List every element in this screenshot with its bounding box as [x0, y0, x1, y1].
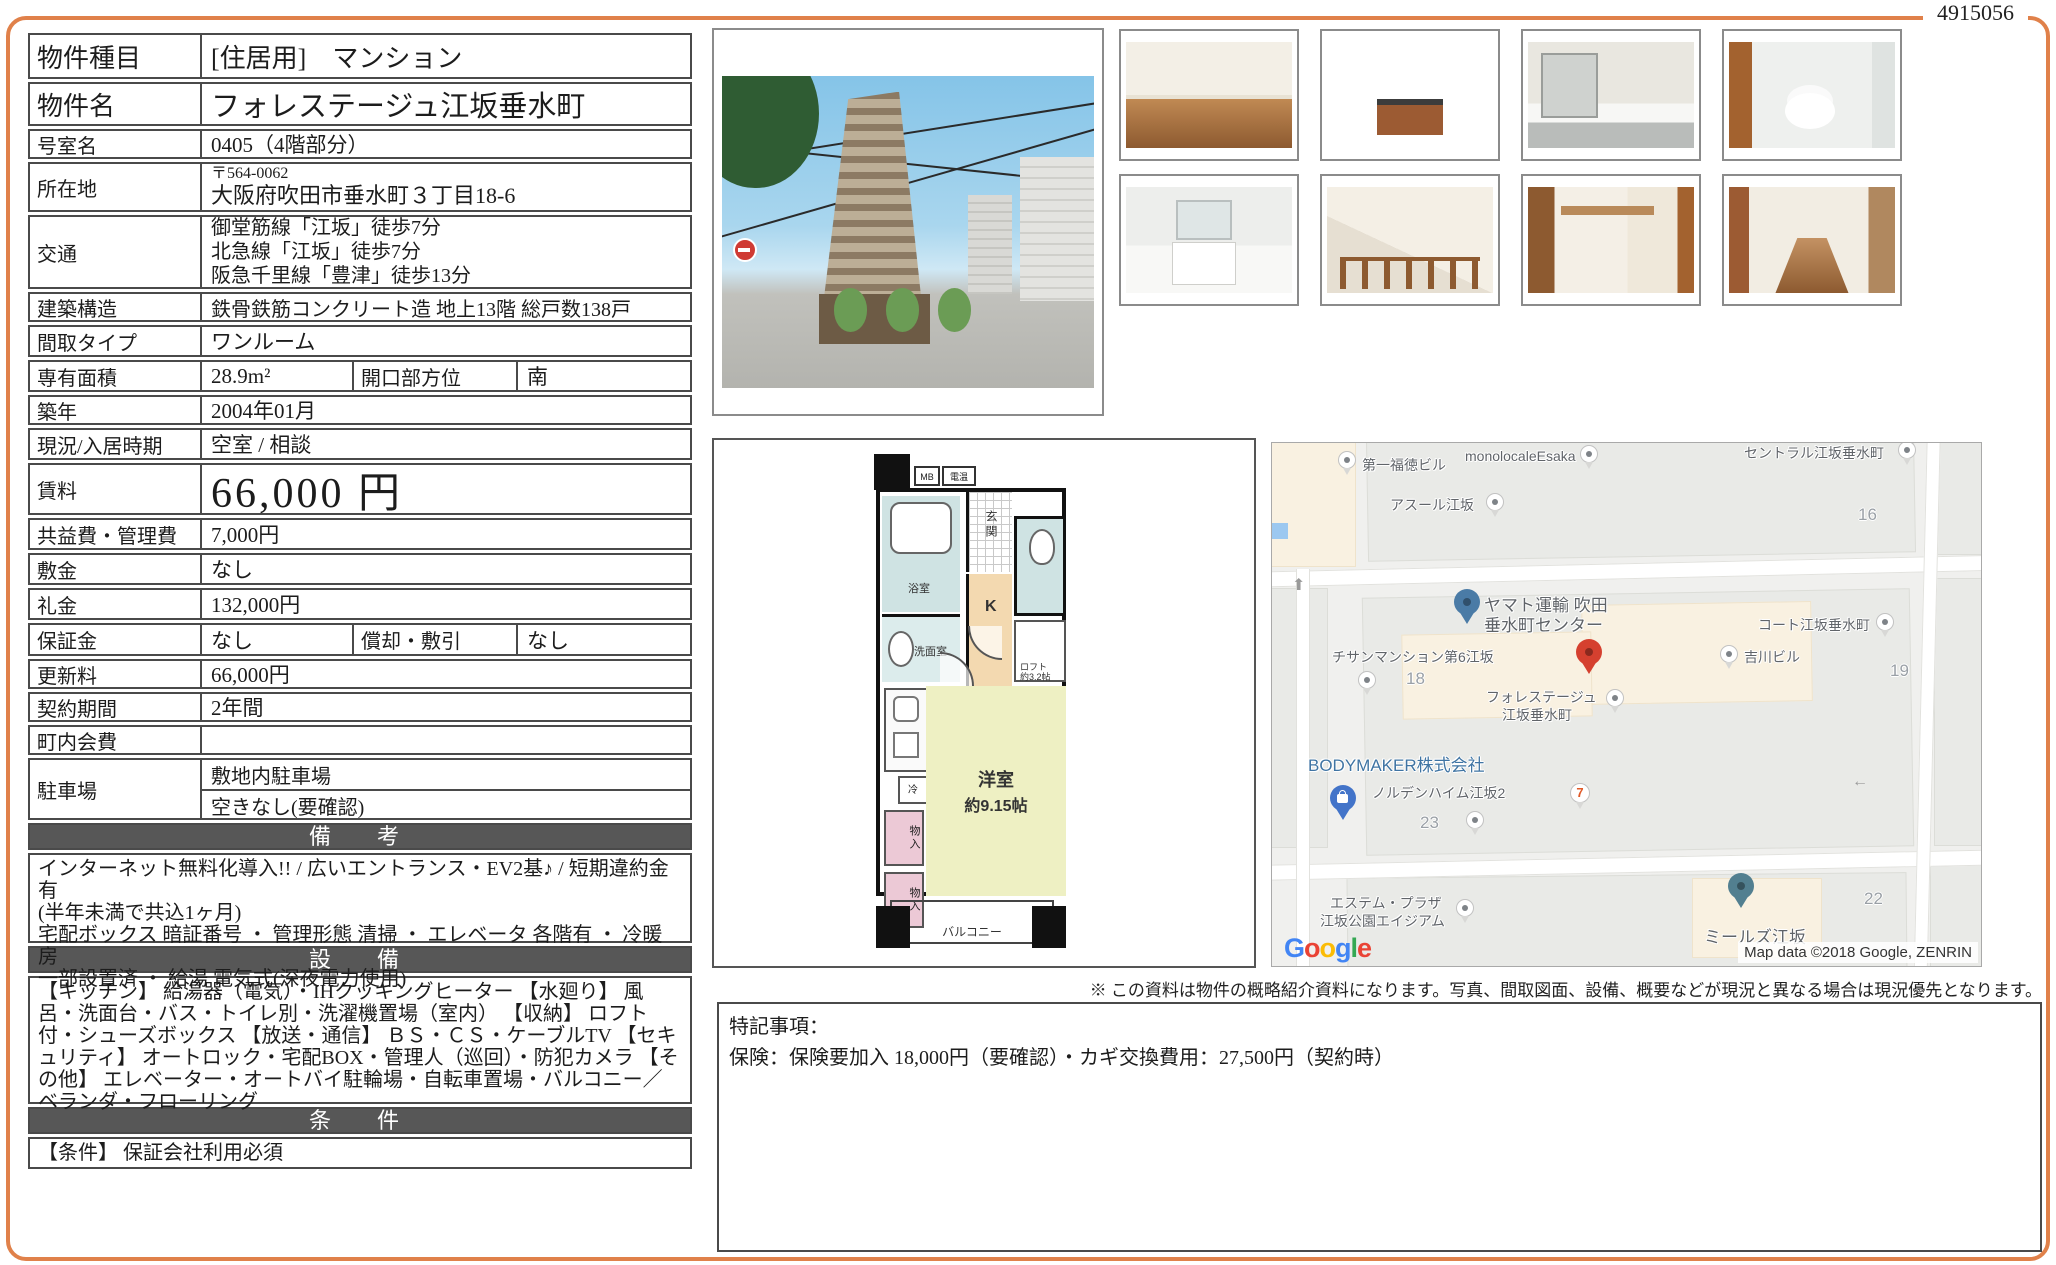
row-value: 0405（4階部分）	[202, 131, 690, 157]
photo-toilet	[1722, 29, 1902, 161]
map-place-label: monolocaleEsaka	[1465, 448, 1576, 464]
table-row: 物件名 フォレステージュ江坂垂水町	[28, 82, 692, 126]
photo-kitchen-image	[1327, 42, 1493, 148]
plan-sink	[893, 696, 919, 722]
property-map-label: 江坂垂水町	[1502, 705, 1572, 725]
plan-laundry-space: ロフト 約3.2帖	[1014, 620, 1066, 682]
photo-bathroom	[1521, 29, 1701, 161]
plan-loft-label-2: 約3.2帖	[1020, 670, 1051, 683]
row-label: 交通	[30, 217, 202, 287]
document-number: 4915056	[1923, 0, 2028, 26]
map-block-number: 16	[1858, 505, 1877, 525]
plan-genkan: 玄関	[966, 492, 1012, 572]
row-label-2: 開口部方位	[352, 362, 518, 390]
map-pin	[1338, 451, 1356, 469]
map-pin	[1456, 899, 1474, 917]
map-pin	[1466, 811, 1484, 829]
map-place-label: アスール江坂	[1390, 495, 1474, 515]
special-notes-body: 保険：保険要加入 18,000円（要確認）・カギ交換費用：27,500円（契約時…	[719, 1039, 2040, 1070]
row-label: 駐車場	[30, 760, 202, 818]
plan-balcony: バルコニー	[890, 900, 1054, 944]
plan-bathtub	[890, 502, 952, 554]
row-label: 共益費・管理費	[30, 520, 202, 548]
photo-washroom	[1119, 174, 1299, 306]
bodymaker-pin	[1330, 785, 1356, 811]
loft-railing	[1340, 257, 1479, 289]
map-water-feature	[1272, 523, 1288, 539]
tree	[886, 288, 919, 332]
table-row: 共益費・管理費 7,000円	[28, 518, 692, 550]
photo-living-room	[1119, 29, 1299, 161]
map-block-number: 23	[1420, 813, 1439, 833]
row-value-2: 南	[518, 362, 690, 390]
row-value: 28.9m²	[202, 362, 352, 390]
tree	[938, 288, 971, 332]
building-exterior-photo	[712, 28, 1104, 416]
photo-living-room-image	[1126, 42, 1292, 148]
map-oneway-arrow: ⬆	[1292, 575, 1305, 595]
row-label: 所在地	[30, 164, 202, 210]
plan-main-room: 洋室 約9.15帖	[926, 686, 1066, 896]
row-value: 132,000円	[202, 590, 690, 618]
table-row-rent: 賃料 66,000 円	[28, 463, 692, 515]
plan-basin	[888, 631, 914, 667]
yamato-pin	[1454, 589, 1480, 615]
parking-type: 敷地内駐車場	[202, 760, 690, 791]
row-label: 専有面積	[30, 362, 202, 390]
row-value: 7,000円	[202, 520, 690, 548]
address: 大阪府吹田市垂水町３丁目18-6	[211, 183, 515, 209]
row-label: 礼金	[30, 590, 202, 618]
row-value: 〒564-0062 大阪府吹田市垂水町３丁目18-6	[202, 164, 690, 210]
plan-kitchen-label: K	[985, 598, 997, 616]
parking-values: 敷地内駐車場 空きなし(要確認)	[202, 760, 690, 818]
row-label: 間取タイプ	[30, 327, 202, 355]
property-location-pin	[1576, 639, 1602, 665]
property-table: 物件種目 [住居用] マンション 物件名 フォレステージュ江坂垂水町 号室名 0…	[28, 33, 692, 1172]
building-photo-scene	[722, 76, 1094, 388]
plan-fridge-space: 冷	[898, 776, 928, 804]
table-row: 敷金 なし	[28, 553, 692, 585]
row-label: 号室名	[30, 131, 202, 157]
map-block-number: 22	[1864, 889, 1883, 909]
row-value: フォレステージュ江坂垂水町	[202, 84, 690, 124]
table-row: 号室名 0405（4階部分）	[28, 129, 692, 159]
row-label: 建築構造	[30, 294, 202, 320]
row-value: なし	[202, 555, 690, 583]
plan-meter-box: 電温	[942, 466, 976, 486]
map-place-label: エステム・プラザ	[1330, 893, 1442, 913]
tree	[834, 288, 867, 332]
map-oneway-arrow: ←	[1852, 773, 1868, 791]
note-line: (半年未満で共込1ヶ月)	[38, 902, 682, 924]
parking-availability: 空きなし(要確認)	[202, 791, 690, 820]
postal-code: 〒564-0062	[211, 165, 288, 183]
section-conditions: 【条件】 保証会社利用必須	[28, 1137, 692, 1169]
map-pin	[1876, 613, 1894, 631]
row-label: 保証金	[30, 625, 202, 654]
map-place-label: チサンマンション第6江坂	[1332, 647, 1494, 667]
table-row: 更新料 66,000円	[28, 659, 692, 689]
map-place-label: ノルデンハイム江坂2	[1372, 783, 1505, 803]
photo-hallway	[1722, 174, 1902, 306]
transit-line: 阪急千里線「豊津」徒歩13分	[211, 264, 471, 288]
row-value: 66,000円	[202, 661, 690, 687]
plan-unit-outline: 玄関 浴室 洗面室 K ロフト 約3	[876, 488, 1066, 896]
table-row: 築年 2004年01月	[28, 395, 692, 425]
row-value: 2004年01月	[202, 397, 690, 423]
photo-kitchen	[1320, 29, 1500, 161]
plan-room-size: 約9.15帖	[964, 792, 1027, 816]
plan-pillar	[874, 454, 910, 490]
row-value: ワンルーム	[202, 327, 690, 355]
map-place-label: 吉川ビル	[1744, 647, 1800, 667]
floor-plan: MB 電温 玄関 浴室 洗面室 K	[712, 438, 1256, 968]
map-pin	[1606, 689, 1624, 707]
row-value: 空室 / 相談	[202, 430, 690, 458]
map-pin	[1580, 445, 1598, 463]
property-map-label: フォレステージュ	[1486, 687, 1597, 707]
bathroom-mirror	[1541, 53, 1597, 119]
special-notes-title: 特記事項：	[719, 1004, 2040, 1039]
table-row: 所在地 〒564-0062 大阪府吹田市垂水町３丁目18-6	[28, 162, 692, 212]
map-block	[1934, 442, 1982, 555]
row-label: 契約期間	[30, 694, 202, 720]
table-row: 契約期間 2年間	[28, 692, 692, 722]
map-pin	[1358, 671, 1376, 689]
photo-bathroom-image	[1528, 42, 1694, 148]
map-pin	[1720, 645, 1738, 663]
map-place-label: セントラル江坂垂水町	[1744, 443, 1884, 463]
row-label-2: 償却・敷引	[352, 625, 518, 654]
row-value	[202, 727, 690, 753]
closet-hanger-bar	[1561, 206, 1654, 214]
property-flyer-page: 4915056 物件種目 [住居用] マンション 物件名 フォレステージュ江坂垂…	[0, 0, 2056, 1265]
row-value: 2年間	[202, 694, 690, 720]
table-row: 専有面積 28.9m² 開口部方位 南	[28, 360, 692, 392]
map-place-label: 垂水町センター	[1484, 611, 1603, 636]
map-block	[1934, 578, 1982, 846]
shopping-bag-icon	[1337, 794, 1348, 803]
map-block-number: 18	[1406, 669, 1425, 689]
plan-kitchen-counter	[884, 688, 928, 772]
photo-washroom-image	[1126, 187, 1292, 293]
rent-value: 66,000 円	[202, 465, 690, 513]
washroom-mirror	[1176, 200, 1232, 240]
table-row: 保証金 なし 償却・敷引 なし	[28, 623, 692, 656]
section-notes: インターネット無料化導入!! / 広いエントランス・EV2基♪ / 短期違約金有…	[28, 853, 692, 943]
row-value: なし	[202, 625, 352, 654]
photo-closet	[1521, 174, 1701, 306]
photo-toilet-image	[1729, 42, 1895, 148]
hallway-floor	[1775, 238, 1848, 293]
plan-pillar	[1032, 906, 1066, 948]
neighbor-building	[1020, 157, 1094, 301]
row-label: 現況/入居時期	[30, 430, 202, 458]
plan-toilet	[1029, 529, 1055, 565]
photo-closet-image	[1528, 187, 1694, 293]
table-row: 間取タイプ ワンルーム	[28, 325, 692, 357]
special-notes-box: 特記事項： 保険：保険要加入 18,000円（要確認）・カギ交換費用：27,50…	[717, 1002, 2042, 1252]
section-header-notes: 備 考	[28, 823, 692, 850]
row-label: 町内会費	[30, 727, 202, 753]
map-place-label: コート江坂垂水町	[1758, 615, 1870, 635]
row-label: 物件名	[30, 84, 202, 124]
transit-line: 御堂筋線「江坂」徒歩7分	[211, 216, 441, 240]
table-row: 交通 御堂筋線「江坂」徒歩7分 北急線「江坂」徒歩7分 阪急千里線「豊津」徒歩1…	[28, 215, 692, 289]
location-map: ⬆ ← 第一福徳ビル monolocaleEsaka アスール江坂 セントラル江…	[1271, 442, 1982, 967]
row-value: 御堂筋線「江坂」徒歩7分 北急線「江坂」徒歩7分 阪急千里線「豊津」徒歩13分	[202, 217, 690, 287]
map-attribution: Map data ©2018 Google, ZENRIN	[1738, 942, 1978, 963]
table-row: 町内会費	[28, 725, 692, 755]
table-row: 物件種目 [住居用] マンション	[28, 33, 692, 79]
row-value: [住居用] マンション	[202, 35, 690, 77]
photo-loft-image	[1327, 187, 1493, 293]
row-label: 更新料	[30, 661, 202, 687]
floor-plan-drawing: MB 電温 玄関 浴室 洗面室 K	[874, 454, 1070, 954]
table-row: 現況/入居時期 空室 / 相談	[28, 428, 692, 460]
plan-mb-box: MB	[914, 466, 940, 486]
transit-line: 北急線「江坂」徒歩7分	[211, 240, 421, 264]
row-label: 物件種目	[30, 35, 202, 77]
plan-pillar	[876, 906, 910, 948]
row-value: 鉄骨鉄筋コンクリート造 地上13階 総戸数138戸	[202, 294, 690, 320]
google-logo: Google	[1284, 935, 1371, 962]
photo-loft	[1320, 174, 1500, 306]
disclaimer-note: ※ この資料は物件の概略紹介資料になります。写真、間取図面、設備、概要などが現況…	[712, 976, 2042, 1001]
table-row: 礼金 132,000円	[28, 588, 692, 620]
note-line: インターネット無料化導入!! / 広いエントランス・EV2基♪ / 短期違約金有	[38, 858, 682, 902]
no-entry-sign	[733, 238, 757, 262]
plan-stove	[893, 732, 919, 758]
vanity-cabinet	[1172, 242, 1235, 284]
map-place-label: 江坂公園エイジアム	[1320, 911, 1445, 931]
seven-eleven-pin: 7	[1570, 783, 1590, 803]
plan-closet-1: 物入	[884, 810, 924, 866]
meals-pin	[1728, 873, 1754, 899]
row-label: 賃料	[30, 465, 202, 513]
plan-genkan-label: 玄関	[983, 510, 1000, 540]
row-label: 築年	[30, 397, 202, 423]
table-row: 建築構造 鉄骨鉄筋コンクリート造 地上13階 総戸数138戸	[28, 292, 692, 322]
plan-bath: 浴室	[882, 496, 960, 612]
map-place-label: BODYMAKER株式会社	[1308, 751, 1485, 776]
kitchen-cabinet	[1377, 99, 1443, 135]
plan-room-label: 洋室	[978, 766, 1014, 792]
table-row-parking: 駐車場 敷地内駐車場 空きなし(要確認)	[28, 758, 692, 820]
tree	[722, 76, 819, 188]
map-place-label: 第一福徳ビル	[1362, 455, 1446, 475]
photo-hallway-image	[1729, 187, 1895, 293]
section-equipment: 【キッチン】 給湯器（電気）・IHクッキングヒーター 【水廻り】 風呂・洗面台・…	[28, 976, 692, 1104]
row-label: 敷金	[30, 555, 202, 583]
map-block-number: 19	[1890, 661, 1909, 681]
plan-bath-label: 浴室	[908, 580, 930, 596]
toilet-bowl	[1785, 93, 1835, 129]
neighbor-building	[968, 195, 1013, 295]
row-value-2: なし	[518, 625, 690, 654]
plan-toilet-room	[1014, 516, 1066, 616]
map-pin	[1486, 493, 1504, 511]
